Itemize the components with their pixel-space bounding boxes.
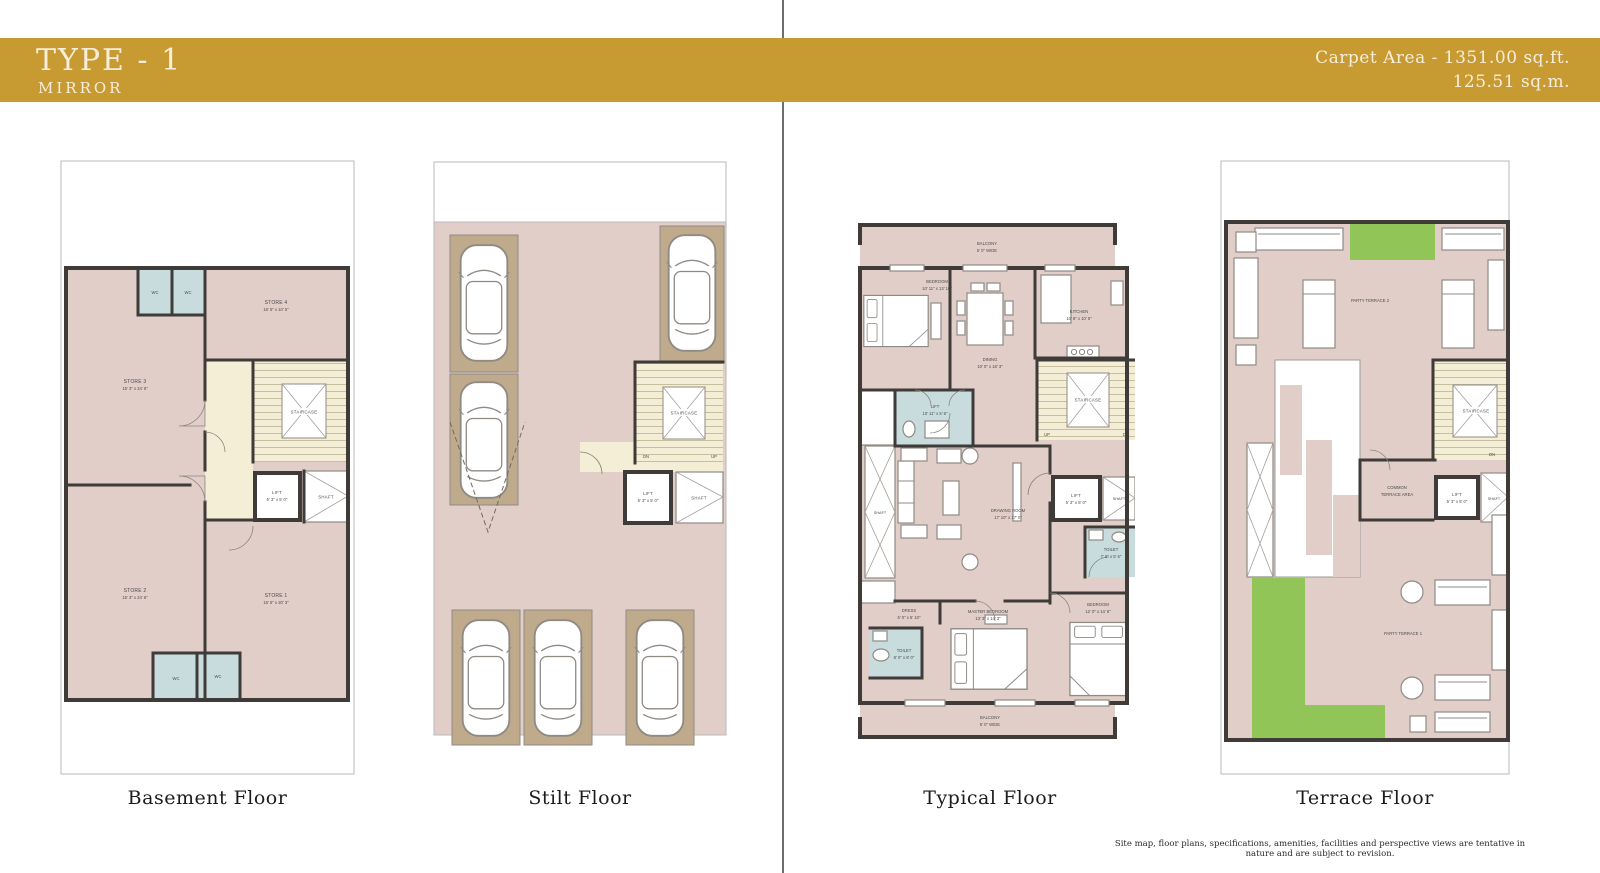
- bedroom1-label: BEDROOM: [926, 279, 948, 284]
- stilt-floor-plan: STAIRCASE DN UP LIFT 5' 3" x 5' 0" SHAFT: [430, 160, 730, 775]
- void-cutout: [1275, 360, 1360, 577]
- up-label: UP: [1044, 432, 1050, 437]
- header-band: TYPE - 1 MIRROR Carpet Area - 1351.00 sq…: [0, 38, 1600, 102]
- typical-floor-plan: BALCONY 5' 0" WIDE BEDROOM 10' 11" x 13'…: [845, 163, 1135, 773]
- basement-wc-top: WC WC: [138, 268, 205, 315]
- shaft-right-label: SHAFT: [1113, 497, 1126, 501]
- bedroom2-label: BEDROOM: [1087, 602, 1109, 607]
- staircase-label: STAIRCASE: [1075, 398, 1102, 403]
- terrace-lift: LIFT 5' 3" x 5' 0": [1436, 477, 1478, 518]
- basement-shaft: SHAFT: [304, 471, 348, 522]
- typical-lift: LIFT 5' 3" x 5' 0": [1053, 477, 1100, 520]
- drawing-room-dim: 17' 10" x 17' 0": [994, 515, 1022, 520]
- lift-dim: 5' 3" x 5' 0": [638, 498, 659, 503]
- store3-label: STORE 3: [124, 379, 147, 385]
- staircase-label: STAIRCASE: [671, 411, 698, 416]
- toilet2-label: TOILET: [897, 648, 912, 653]
- shaft-label: SHAFT: [691, 496, 707, 501]
- bed: [864, 295, 928, 346]
- basement-floor-plan: STAIRCASE WC WC WC WC LIFT 5' 3" x 5' 0": [60, 160, 355, 775]
- wc-label: WC: [215, 674, 222, 679]
- caption-stilt: Stilt Floor: [430, 787, 730, 809]
- lift-dim: 5' 3" x 5' 0": [1447, 499, 1468, 504]
- car-top-view: [533, 620, 583, 736]
- upper-toilet-room: LIFT 10' 11" x 5' 6": [860, 390, 973, 445]
- wc-label: WC: [173, 676, 180, 681]
- staircase-label: STAIRCASE: [291, 410, 318, 415]
- balcony-dim: 5' 0" WIDE: [980, 722, 1000, 727]
- stilt-shaft: SHAFT: [676, 472, 723, 523]
- upper-toilet-dim: 10' 11" x 5' 6": [923, 411, 948, 416]
- store2-label: STORE 2: [124, 588, 147, 594]
- terrace-floor-plan: PARTY TERRACE 2 STAIRCASE DN: [1220, 160, 1510, 775]
- terrace-shaft-left: [1247, 443, 1273, 577]
- shaft-left: SHAFT: [865, 446, 895, 578]
- stilt-lift: LIFT 5' 3" x 5' 0": [625, 472, 671, 523]
- bedroom1-dim: 10' 11" x 13' 10": [922, 286, 952, 291]
- store2-dim: 15' 3" x 24' 6": [122, 595, 148, 600]
- lift-label: LIFT: [643, 491, 653, 496]
- caption-typical: Typical Floor: [845, 787, 1135, 809]
- disclaimer-text: Site map, floor plans, specifications, a…: [1100, 839, 1540, 859]
- balcony-label: BALCONY: [980, 715, 1000, 720]
- store3-dim: 15' 3" x 24' 9": [122, 386, 148, 391]
- shaft-left-label: SHAFT: [874, 511, 887, 515]
- terrace-staircase: STAIRCASE DN: [1433, 360, 1508, 460]
- master-label: MASTER BEDROOM: [968, 609, 1009, 614]
- store4-dim: 16' 6" x 10' 5": [263, 307, 289, 312]
- lift-dim: 5' 3" x 5' 0": [1066, 500, 1087, 505]
- caption-basement: Basement Floor: [60, 787, 355, 809]
- party-terrace2-label: PARTY TERRACE 2: [1351, 298, 1390, 303]
- typical-staircase: STAIRCASE UP DN: [1037, 360, 1135, 440]
- kitchen-dim: 10' 8" x 10' 5": [1066, 316, 1092, 321]
- lift-label: LIFT: [1071, 493, 1081, 498]
- dress-label: DRESS: [902, 608, 917, 613]
- basement-wc-bottom: WC WC: [153, 653, 240, 698]
- common-terrace-label-2: TERRACE AREA: [1381, 492, 1414, 497]
- toilet2: TOILET 8' 0" x 8' 0": [870, 628, 922, 678]
- wc-label: WC: [152, 290, 159, 295]
- toilet1-label: TOILET: [1104, 547, 1119, 552]
- balcony-dim: 5' 0" WIDE: [977, 248, 997, 253]
- staircase-label: STAIRCASE: [1463, 409, 1490, 414]
- bed: [951, 629, 1027, 689]
- bedroom2-dim: 12' 0" x 14' 6": [1085, 609, 1111, 614]
- carpet-area: Carpet Area - 1351.00 sq.ft. 125.51 sq.m…: [1315, 47, 1570, 95]
- store1-dim: 16' 6" x 20' 3": [263, 600, 289, 605]
- basement-staircase: STAIRCASE: [253, 360, 348, 462]
- store1-label: STORE 1: [265, 593, 288, 599]
- store4-label: STORE 4: [265, 300, 288, 306]
- bed: [1070, 622, 1128, 695]
- wc-label: WC: [185, 290, 192, 295]
- caption-terrace: Terrace Floor: [1220, 787, 1510, 809]
- dining-dim: 10' 0" x 18' 3": [977, 364, 1003, 369]
- car-top-view: [459, 382, 509, 498]
- basement-lift: LIFT 5' 3" x 5' 0": [255, 473, 300, 520]
- car-top-view: [667, 235, 717, 351]
- basement-lobby: [205, 360, 253, 520]
- car-top-view: [635, 620, 685, 736]
- shaft-label: SHAFT: [318, 495, 334, 500]
- balcony-top: BALCONY 5' 0" WIDE: [860, 225, 1115, 268]
- balcony-label: BALCONY: [977, 241, 997, 246]
- car-top-view: [459, 245, 509, 361]
- toilet2-dim: 8' 0" x 8' 0": [894, 655, 915, 660]
- shaft-label: SHAFT: [1488, 497, 1501, 501]
- drawing-room-label: DRAWING ROOM: [991, 508, 1026, 513]
- stilt-staircase: STAIRCASE DN UP: [635, 362, 723, 463]
- shaft-right: SHAFT: [1103, 477, 1135, 520]
- dress-dim: 6' 0" x 5' 10": [898, 615, 921, 620]
- carpet-area-sqm: 125.51 sq.m.: [1315, 71, 1570, 95]
- page-title: TYPE - 1: [36, 43, 182, 78]
- up-label: UP: [711, 454, 717, 459]
- common-terrace-label-1: COMMON: [1387, 485, 1407, 490]
- toilet1-dim: 7' 6" x 5' 6": [1101, 554, 1122, 559]
- dn-label: DN: [643, 454, 649, 459]
- car-top-view: [461, 620, 511, 736]
- carpet-area-sqft: Carpet Area - 1351.00 sq.ft.: [1315, 47, 1570, 71]
- brochure-page: TYPE - 1 MIRROR Carpet Area - 1351.00 sq…: [0, 0, 1600, 873]
- dn-label: DN: [1489, 452, 1495, 457]
- balcony-bottom: BALCONY 5' 0" WIDE: [860, 705, 1115, 737]
- planter-green: [1350, 223, 1435, 260]
- upper-toilet-label: LIFT: [931, 404, 940, 409]
- page-subtitle: MIRROR: [38, 79, 123, 97]
- lift-dim: 5' 3" x 5' 0": [267, 497, 288, 502]
- center-divider-line: [782, 0, 784, 873]
- dining-label: DINING: [983, 357, 998, 362]
- kitchen-label: KITCHEN: [1070, 309, 1088, 314]
- master-dim: 13' 3" x 14' 3": [975, 616, 1001, 621]
- party-terrace1-label: PARTY TERRACE 1: [1384, 631, 1423, 636]
- lift-label: LIFT: [1452, 492, 1462, 497]
- lift-label: LIFT: [272, 490, 282, 495]
